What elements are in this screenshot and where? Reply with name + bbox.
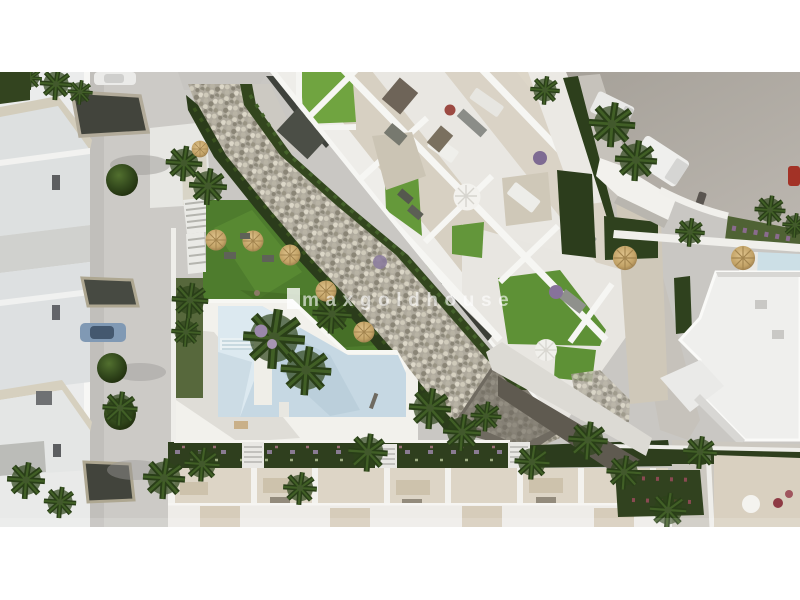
svg-text:maxgoldhouse: maxgoldhouse xyxy=(302,290,515,311)
